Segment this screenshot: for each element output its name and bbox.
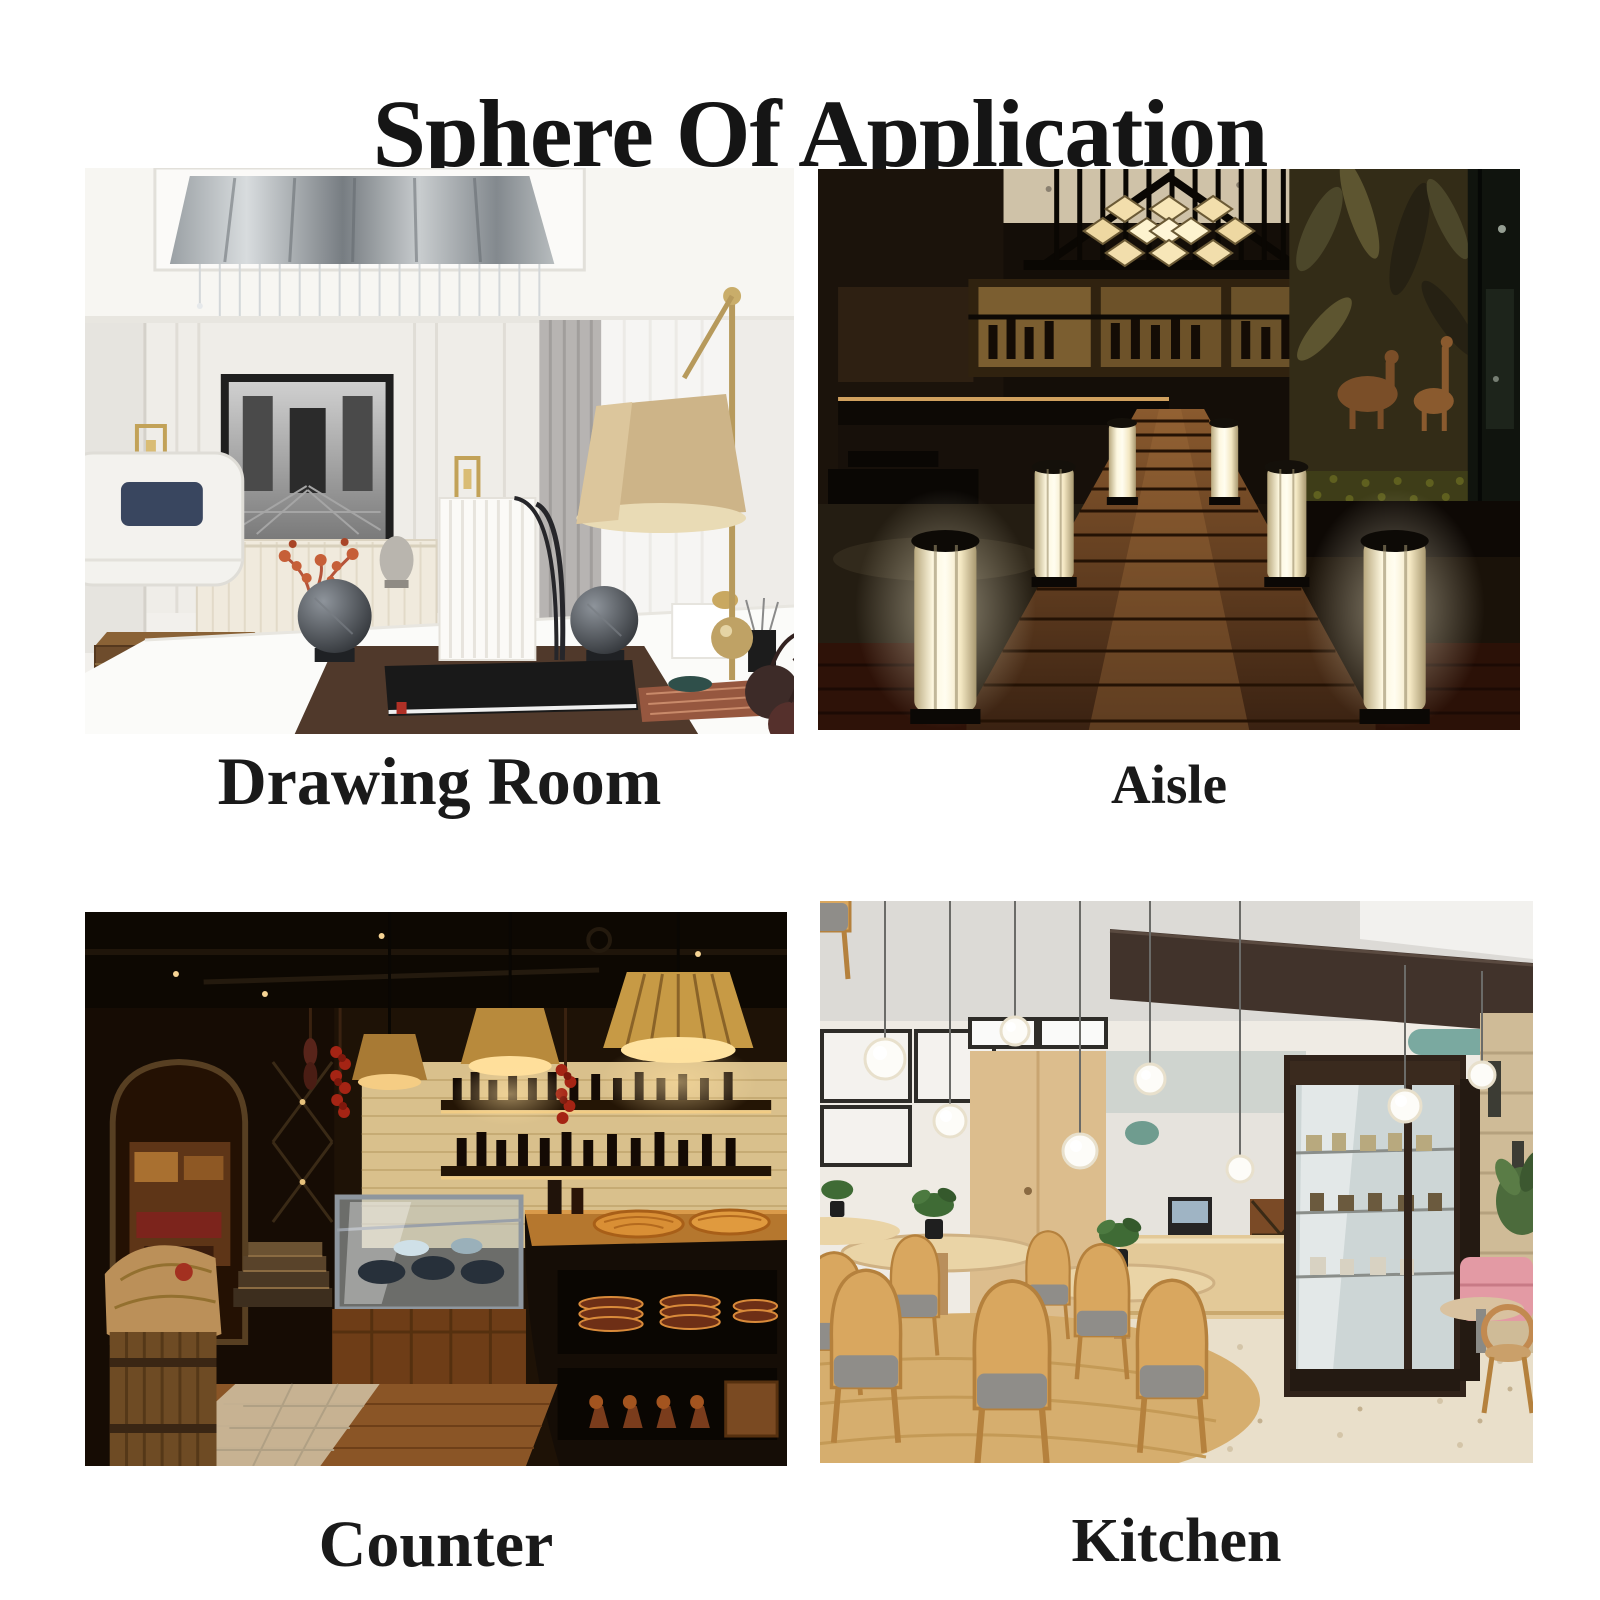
- stone-sculpture: [380, 536, 414, 588]
- glass-cabinet: [1290, 1061, 1480, 1391]
- column-lamp: [1032, 460, 1077, 587]
- round-counter: [525, 1180, 787, 1466]
- jungle-mural: [1287, 169, 1486, 509]
- framed-artwork: [225, 378, 390, 543]
- plate-shelf: [558, 1270, 777, 1354]
- application-card-drawing-room: Drawing Room: [85, 168, 794, 817]
- armchair: [85, 453, 243, 585]
- green-lamp: [1125, 1121, 1159, 1145]
- honeycomb-light: [1084, 196, 1254, 266]
- caption-drawing-room: Drawing Room: [85, 746, 794, 817]
- caption-aisle: Aisle: [818, 756, 1520, 814]
- caption-kitchen: Kitchen: [820, 1509, 1533, 1574]
- kitchen-illustration: [820, 901, 1533, 1463]
- goblet-shelf: [558, 1368, 777, 1440]
- stairs: [233, 1242, 332, 1307]
- column-lamp: [1209, 418, 1240, 505]
- aisle-illustration: [818, 169, 1520, 730]
- aisle-photo: [818, 169, 1520, 730]
- burlap-barrel: [105, 1245, 222, 1466]
- counter-photo: [85, 912, 787, 1466]
- column-lamp: [1107, 418, 1138, 505]
- drawing-room-illustration: [85, 168, 794, 734]
- column-lamp: [1360, 530, 1430, 724]
- column-lamp: [910, 530, 980, 724]
- application-card-counter: Counter: [85, 912, 787, 1579]
- black-book: [385, 660, 639, 716]
- application-card-kitchen: Kitchen: [820, 901, 1533, 1574]
- counter-illustration: [85, 912, 787, 1466]
- drawing-room-photo: [85, 168, 794, 734]
- caption-counter: Counter: [85, 1510, 787, 1579]
- column-lamp: [1264, 460, 1309, 587]
- application-card-aisle: Aisle: [818, 169, 1520, 814]
- kitchen-photo: [820, 901, 1533, 1463]
